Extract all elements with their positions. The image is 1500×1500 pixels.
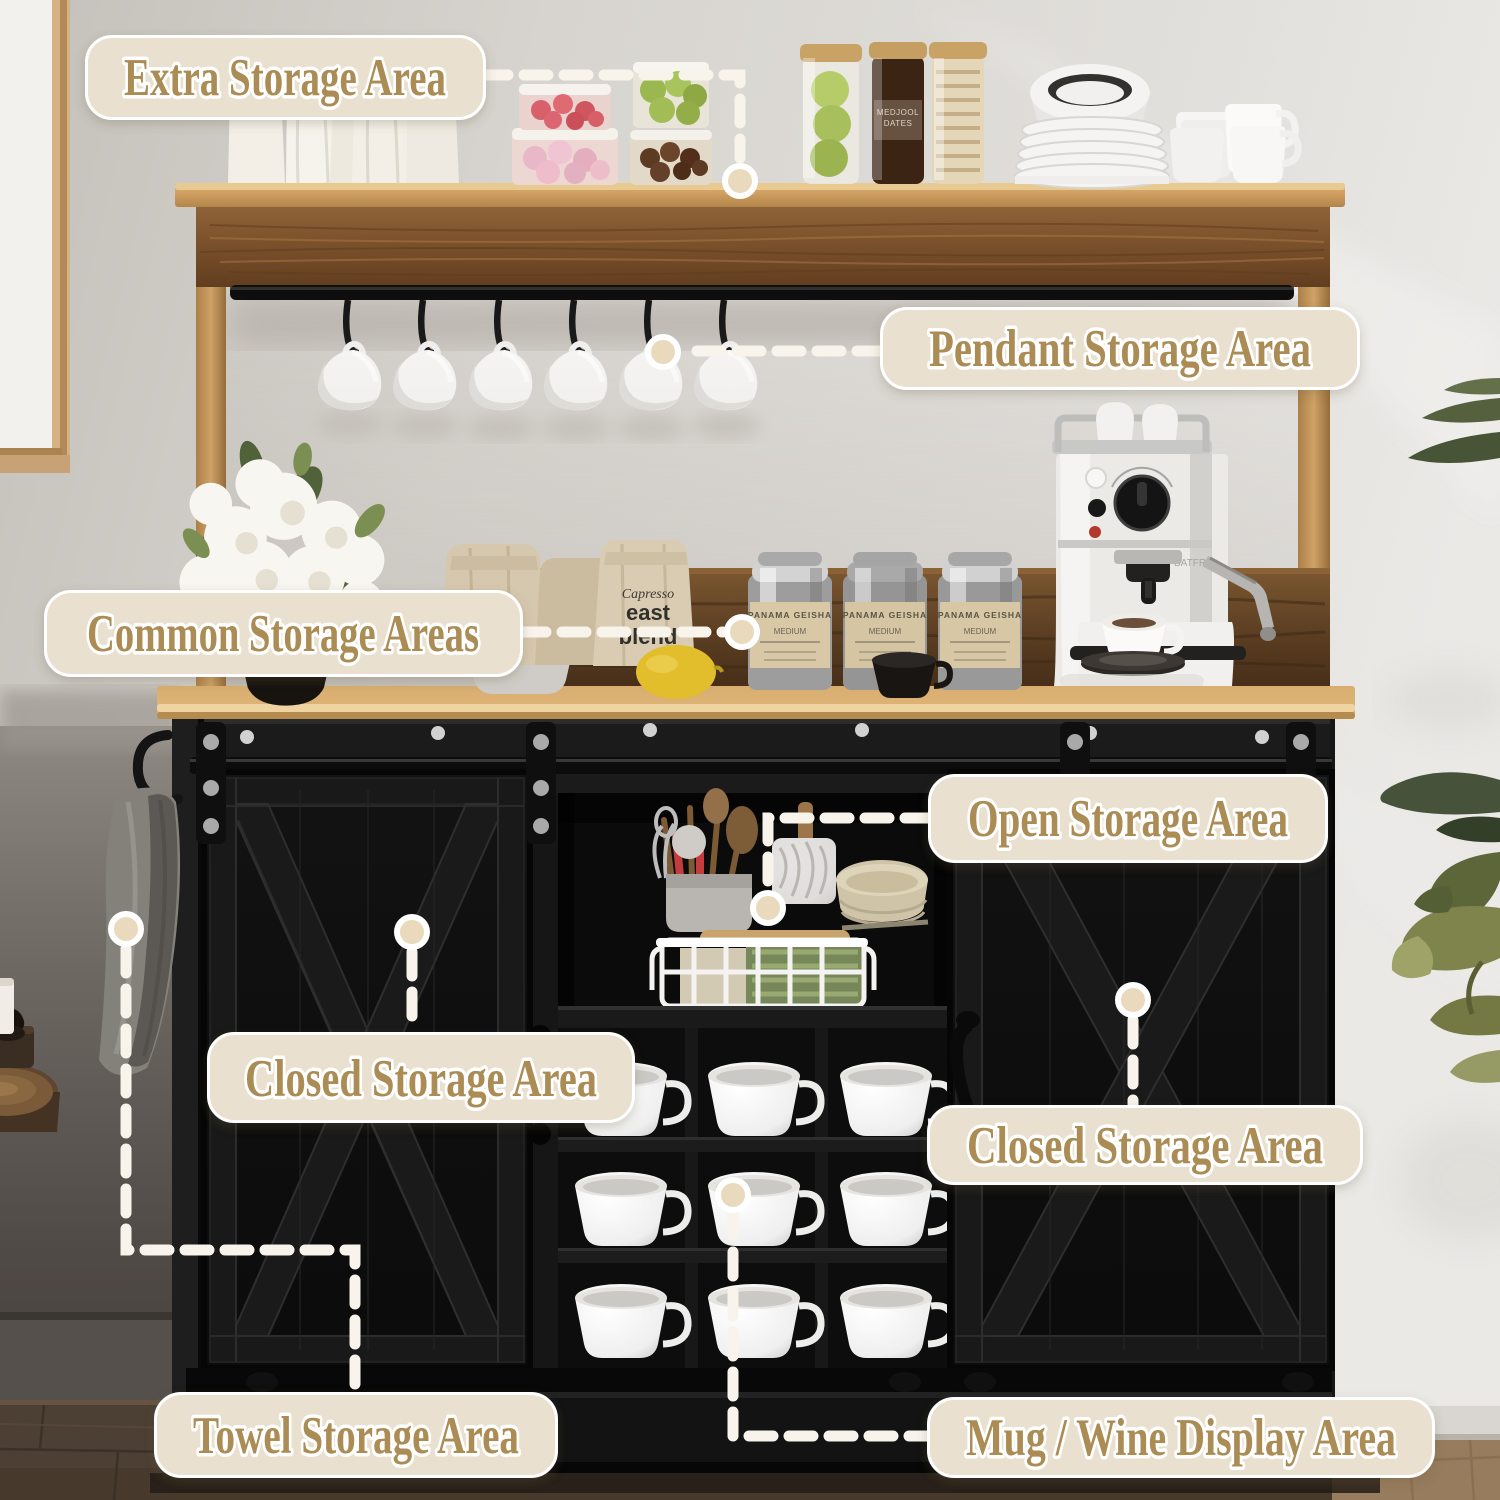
svg-text:east: east <box>626 600 671 625</box>
svg-text:Common Storage Areas: Common Storage Areas <box>87 605 479 663</box>
svg-text:Extra Storage Area: Extra Storage Area <box>124 49 446 107</box>
svg-text:MEDJOOL: MEDJOOL <box>877 108 919 117</box>
svg-text:DATES: DATES <box>884 119 913 128</box>
svg-text:MEDIUM: MEDIUM <box>774 627 807 636</box>
svg-text:Open Storage Area: Open Storage Area <box>968 790 1288 848</box>
svg-text:Pendant Storage Area: Pendant Storage Area <box>929 320 1311 378</box>
svg-text:Mug / Wine Display Area: Mug / Wine Display Area <box>966 1409 1396 1467</box>
svg-text:Closed Storage Area: Closed Storage Area <box>245 1050 597 1108</box>
svg-text:Closed Storage Area: Closed Storage Area <box>967 1117 1323 1175</box>
svg-text:Towel Storage Area: Towel Storage Area <box>193 1407 519 1465</box>
svg-text:PANAMA GEISHA: PANAMA GEISHA <box>938 610 1022 620</box>
svg-text:MEDIUM: MEDIUM <box>869 627 902 636</box>
svg-text:MEDIUM: MEDIUM <box>964 627 997 636</box>
svg-text:PANAMA GEISHA: PANAMA GEISHA <box>748 610 832 620</box>
svg-text:PANAMA GEISHA: PANAMA GEISHA <box>843 610 927 620</box>
